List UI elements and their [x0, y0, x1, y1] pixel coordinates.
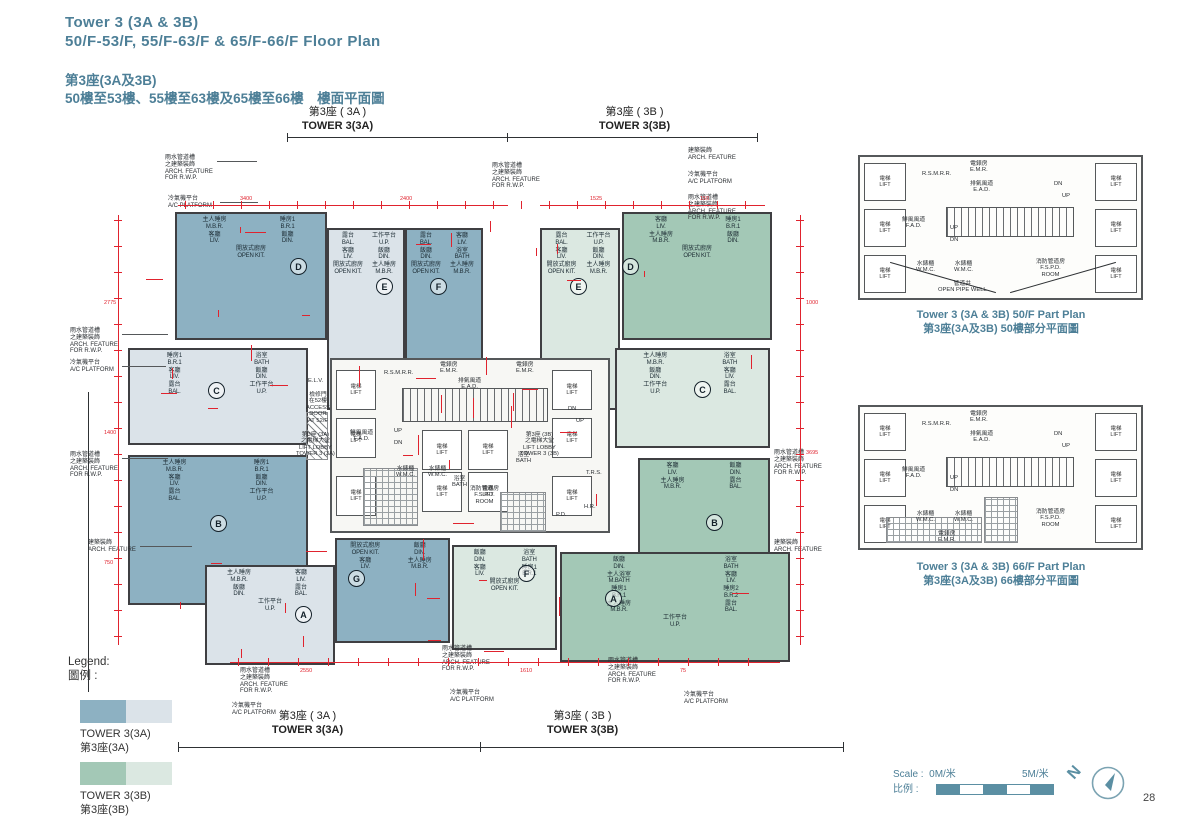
room-label: 露台BAL.	[331, 233, 364, 247]
core-label: E.L.V.	[308, 378, 323, 384]
annotation-line: A/C PLATFORM	[450, 697, 494, 704]
room-label: 露台BAL.	[272, 585, 329, 599]
dimension-line	[388, 658, 389, 666]
core-label: R.S.M.R.R.	[384, 370, 413, 376]
room-label: 浴室BATH	[445, 248, 478, 262]
room-label-en: DIN.	[367, 254, 400, 261]
part-plan-66f-label-line: E.M.R.	[970, 417, 988, 423]
room-label-en: B.R.2	[679, 593, 782, 600]
dimension-line	[403, 455, 413, 456]
room-label-zh: 主人睡房	[581, 262, 615, 269]
dimension-line	[633, 201, 634, 209]
part-plan-66f-lift-cell: 電梯LIFT	[1095, 505, 1137, 543]
annotation-line: 建築裝飾	[688, 148, 736, 155]
core-label: 電錶房E.M.R.	[516, 362, 534, 375]
room-label: 客廳LIV.	[457, 565, 503, 579]
dimension-value: 3695	[806, 450, 818, 456]
part-plan-66f-label-line: F.S.P.D.	[1036, 515, 1065, 521]
room-label-en: DIN.	[210, 591, 267, 598]
room-label-en: OPEN KIT.	[217, 253, 284, 260]
lift-label-en: LIFT	[566, 390, 577, 396]
room-label-zh: 客廳	[544, 248, 578, 255]
room-label: 開放式廚房OPEN KIT.	[544, 262, 578, 276]
room-label-zh: 浴室	[221, 353, 301, 360]
dimension-line	[521, 201, 522, 209]
room-label-zh: 開放式廚房	[664, 246, 730, 253]
dimension-line	[800, 215, 801, 645]
core-label-line: TOWER 3 (3A)	[296, 451, 335, 457]
room-label-zh: 睡房1	[134, 353, 214, 360]
page-title-zh-line1: 第3座(3A及3B)	[65, 72, 385, 90]
room-label-en: BATH	[695, 360, 764, 367]
room-label-en: DIN.	[457, 557, 503, 564]
room-label: 露台BAL.	[544, 233, 578, 247]
room-label: 客廳LIV.	[628, 217, 694, 231]
scale-bar-segment	[937, 785, 960, 794]
part-plan-50f-label-line: R.S.M.R.R.	[922, 171, 951, 177]
part-plan-66f-label-line: UP	[1062, 443, 1070, 449]
part-plan-50f-label-line: W.M.C.	[916, 267, 935, 273]
unit-letter-f: F	[430, 278, 447, 295]
room-label: 開放式廚房OPEN KIT.	[409, 262, 442, 276]
core-label-line: T.R.S.	[586, 470, 602, 476]
dimension-line	[796, 402, 804, 403]
part-plan-50f-label-line: DN	[1054, 181, 1062, 187]
dimension-line	[449, 460, 450, 470]
dimension-line	[409, 201, 410, 209]
dimension-line	[114, 506, 122, 507]
dimension-line	[114, 298, 122, 299]
unit-letter-c: C	[694, 381, 711, 398]
annotation-line: A/C PLATFORM	[168, 203, 212, 210]
room-label-en: DIN.	[700, 238, 766, 245]
dimension-line	[451, 233, 452, 247]
unit-letter-e: E	[376, 278, 393, 295]
part-plan-50f-label: 排氣風道E.A.D.	[970, 181, 993, 194]
core-label: 排氣風道E.A.D.	[458, 378, 481, 391]
annotation-callout: 冷氣機平台A/C PLATFORM	[168, 196, 212, 210]
room-label: 飯廳DIN.	[581, 248, 615, 262]
room-label-zh: 客廳	[695, 368, 764, 375]
part-plan-66f-label-line: DN	[1054, 431, 1062, 437]
dimension-line	[161, 393, 177, 394]
annotation-line: 冷氣機平台	[70, 360, 114, 367]
annotation-callout: 冷氣機平台A/C PLATFORM	[450, 690, 494, 704]
part-plan-50f-label: 消防管道房F.S.P.D.ROOM	[1036, 259, 1065, 278]
room-label-zh: 浴室	[695, 353, 764, 360]
dimension-line	[118, 215, 119, 645]
dimension-line	[745, 201, 746, 209]
part-plan-50f-label: R.S.M.R.R.	[922, 171, 951, 177]
dimension-line	[238, 658, 239, 666]
overall-dim-tick	[480, 742, 481, 752]
part-plan-50f-lift-cell: 電梯LIFT	[1095, 163, 1137, 201]
overall-dim-left	[88, 392, 89, 692]
room-label: 開放式廚房OPEN KIT.	[217, 246, 284, 260]
room-label-en: LIV.	[679, 578, 782, 585]
core-label: 檢修門在52樓ACCESSDOORAT 52/F	[306, 392, 330, 424]
room-label: 主人睡房M.B.R.	[181, 217, 248, 231]
room-label-zh: 浴室	[445, 248, 478, 255]
part-plan-66f-label: R.S.M.R.R.	[922, 421, 951, 427]
room-label-en: BATH	[221, 360, 301, 367]
annotation-line: ARCH. FEATURE	[688, 155, 736, 162]
legend-title-en: Legend:	[68, 655, 110, 669]
room-label-en: U.P.	[623, 622, 726, 629]
core-label-line: DN	[568, 406, 576, 412]
room-label-en: M.B.R.	[445, 269, 478, 276]
dimension-line	[448, 658, 449, 666]
room-label-zh: 飯廳	[567, 557, 670, 564]
core-label-line: BATH	[452, 482, 467, 488]
annotation-line: ARCH. FEATURE	[608, 672, 656, 679]
dimension-line	[114, 246, 122, 247]
room-label-zh: 露台	[331, 233, 364, 240]
core-label: 消防管道房F.S.P.D.ROOM	[470, 486, 499, 505]
lift-cell: 電梯LIFT	[468, 430, 508, 470]
room-label-en: LIV.	[695, 374, 764, 381]
lift-label-en: LIFT	[436, 450, 447, 456]
room-label-en: M.B.R.	[567, 607, 670, 614]
part-plan-50f-caption: Tower 3 (3A & 3B) 50/F Part Plan 第3座(3A及…	[851, 308, 1151, 337]
dimension-line	[598, 658, 599, 666]
dimension-line	[453, 523, 474, 524]
core-label-line: ROOM	[470, 499, 499, 505]
dimension-line	[628, 658, 629, 666]
dimension-line	[751, 355, 752, 369]
room-label: 飯廳DIN.	[409, 248, 442, 262]
dimension-line	[559, 597, 560, 616]
part-plan-50f-label-line: DN	[950, 237, 958, 243]
room-label: 飯廳DIN.	[210, 585, 267, 599]
scale-bar	[936, 784, 1054, 795]
room-label-en: BATH	[506, 557, 552, 564]
room-label-en: LIV.	[134, 374, 214, 381]
annotation-line: ARCH. FEATURE	[88, 547, 136, 554]
room-label-zh: 飯廳	[700, 232, 766, 239]
room-label-en: U.P.	[241, 606, 298, 613]
dimension-line	[596, 494, 597, 506]
dimension-line	[605, 201, 606, 209]
dimension-line	[114, 558, 122, 559]
room-label-zh: 飯廳	[221, 475, 301, 482]
core-label-line: BATH	[516, 458, 531, 464]
room-label: 飯廳DIN.	[367, 248, 400, 262]
room-label: 客廳LIV.	[134, 475, 214, 489]
part-plan-66f-label: 水錶櫃W.M.C.	[954, 511, 973, 524]
room-label-en: B.R.1	[700, 224, 766, 231]
core-label: 水錶櫃W.M.C.	[396, 466, 415, 479]
part-plan-66f-label: DN	[1054, 431, 1062, 437]
room-label: 飯廳DIN.	[567, 557, 670, 571]
room-label: 睡房1B.R.1	[254, 217, 321, 231]
dimension-line	[796, 376, 804, 377]
dimension-line	[486, 357, 487, 375]
dimension-line	[796, 584, 804, 585]
room-label: 客廳LIV.	[544, 248, 578, 262]
dimension-line	[717, 201, 718, 209]
room-label-en: OPEN KIT.	[409, 269, 442, 276]
legend-label-3b-zh: 第3座(3B)	[80, 803, 129, 817]
room-label-zh: 客廳	[272, 570, 329, 577]
room-label: 主人睡房M.B.R.	[644, 478, 702, 492]
room-label: 工作平台U.P.	[623, 615, 726, 629]
dimension-line	[251, 345, 252, 361]
annotation-line: 雨水管道槽	[492, 163, 540, 170]
annotation-line: 之建築裝飾	[492, 170, 540, 177]
dimension-value: 2550	[300, 668, 312, 674]
room-label: 露台BAL.	[679, 601, 782, 615]
annotation-callout: 雨水管道槽之建築裝飾ARCH. FEATUREFOR R.W.P.	[70, 452, 118, 479]
annotation-callout: 雨水管道槽之建築裝飾ARCH. FEATUREFOR R.W.P.	[240, 668, 288, 695]
annotation-line: ARCH. FEATURE	[688, 209, 736, 216]
dimension-value: 1000	[806, 300, 818, 306]
part-plan-50f-stair	[946, 207, 1074, 237]
room-label-en: DIN.	[221, 374, 301, 381]
dimension-line	[114, 402, 122, 403]
dimension-line	[241, 649, 242, 659]
room-label-zh: 開放式廚房	[340, 543, 390, 550]
room-label-zh: 飯廳	[395, 543, 445, 550]
part-plan-50f-label: UP	[950, 225, 958, 231]
dimension-line	[508, 658, 509, 666]
room-label-zh: 主人睡房	[134, 460, 214, 467]
unit-letter-d: D	[622, 258, 639, 275]
annotation-callout: 建築裝飾ARCH. FEATURE	[774, 540, 822, 554]
annotation-line: FOR R.W.P.	[774, 470, 822, 477]
dimension-line	[218, 310, 219, 317]
core-label: DN	[394, 440, 402, 446]
part-plan-66f-label-line: UP	[950, 475, 958, 481]
annotation-line: ARCH. FEATURE	[165, 169, 213, 176]
room-label: 工作平台U.P.	[221, 382, 301, 396]
core-label-line: E.M.R.	[440, 368, 458, 374]
room-label-zh: 客廳	[679, 572, 782, 579]
room-label-en: OPEN KIT.	[331, 269, 364, 276]
dimension-line	[298, 658, 299, 666]
lift-label-en: LIFT	[350, 496, 361, 502]
dimension-value: 1525	[590, 196, 602, 202]
part-plan-66f-label-line: R.S.M.R.R.	[922, 421, 951, 427]
dimension-value: 2400	[400, 196, 412, 202]
room-label-zh: 飯廳	[581, 248, 615, 255]
core-label: 鮮風風道F.A.D.	[350, 430, 373, 443]
part-plan-66f-lift-cell: 電梯LIFT	[1095, 413, 1137, 451]
room-label-en: LIV.	[181, 238, 248, 245]
part-plan-50f-label-line: E.A.D.	[970, 187, 993, 193]
dimension-line	[114, 610, 122, 611]
overall-dim-tick	[507, 133, 508, 142]
room-label: 開放式廚房OPEN KIT.	[340, 543, 390, 557]
room-label-en: U.P.	[367, 240, 400, 247]
legend-label-3a-en: TOWER 3(3A)	[80, 727, 151, 741]
core-label: 水錶櫃W.M.C.	[428, 466, 447, 479]
dimension-line	[303, 636, 304, 648]
room-label: 主人睡房M.B.R.	[367, 262, 400, 276]
dimension-line	[306, 551, 327, 552]
annotation-callout: 冷氣機平台A/C PLATFORM	[232, 703, 276, 717]
dimension-line	[114, 220, 122, 221]
annotation-line: 之建築裝飾	[608, 665, 656, 672]
dimension-line	[114, 454, 122, 455]
room-label-en: M.B.R.	[210, 577, 267, 584]
part-plan-66f-label: 電錶房E.M.R.	[970, 411, 988, 424]
overall-dim-tick	[843, 742, 844, 752]
dimension-line	[567, 280, 581, 281]
stair-flight	[402, 388, 548, 422]
room-label: 工作平台U.P.	[581, 233, 615, 247]
unit-letter-f: F	[518, 565, 535, 582]
dimension-line	[114, 428, 122, 429]
room-label: 浴室BATH	[679, 557, 782, 571]
scale-end-value: 5M/米	[1022, 768, 1049, 781]
annotation-leader-line	[220, 202, 258, 203]
room-label: 客廳LIV.	[134, 368, 214, 382]
dimension-line	[493, 201, 494, 209]
lift-cell: 電梯LIFT	[552, 370, 592, 410]
annotation-callout: 冷氣機平台A/C PLATFORM	[70, 360, 114, 374]
annotation-callout: 雨水管道槽之建築裝飾ARCH. FEATUREFOR R.W.P.	[688, 195, 736, 222]
dimension-line	[353, 201, 354, 209]
core-label-line: E.L.V.	[308, 378, 323, 384]
room-label-zh: 客廳	[181, 232, 248, 239]
core-label: 浴室BATH	[452, 476, 467, 489]
core-label: DN	[568, 406, 576, 412]
room-label-zh: 開放式廚房	[331, 262, 364, 269]
room-label: 客廳LIV.	[644, 463, 702, 477]
lift-label-en: LIFT	[879, 182, 890, 188]
dimension-line	[178, 205, 508, 206]
room-label: 飯廳DIN.	[254, 232, 321, 246]
room-label-en: BATH	[445, 254, 478, 261]
core-label-line: 之電梯大堂	[296, 438, 335, 444]
dimension-line	[114, 532, 122, 533]
room-label-en: M.B.R.	[628, 238, 694, 245]
annotation-line: FOR R.W.P.	[442, 666, 490, 673]
room-label-zh: 主人睡房	[181, 217, 248, 224]
room-label: 飯廳DIN.	[221, 475, 301, 489]
core-label: 第3座 (3A)之電梯大堂LIFT LOBBYTOWER 3 (3A)	[296, 432, 335, 458]
core-label-line: E.A.D.	[458, 384, 481, 390]
room-label-zh: 主人睡房	[367, 262, 400, 269]
room-label: 飯廳DIN.	[621, 368, 690, 382]
annotation-line: 雨水管道槽	[442, 646, 490, 653]
room-label-en: OPEN KIT.	[340, 550, 390, 557]
room-label-en: BAL.	[544, 240, 578, 247]
lift-label-en: LIFT	[482, 450, 493, 456]
dimension-line	[478, 658, 479, 666]
dimension-line	[796, 532, 804, 533]
unit-3b-a: 飯廳DIN.浴室BATH主人浴室M.BATH客廳LIV.睡房1B.R.1睡房2B…	[560, 552, 790, 662]
dimension-line	[688, 658, 689, 666]
legend-label-3a-zh: 第3座(3A)	[80, 741, 129, 755]
annotation-line: 冷氣機平台	[232, 703, 276, 710]
room-label: 主人睡房M.B.R.	[628, 232, 694, 246]
dimension-line	[114, 376, 122, 377]
room-label: 工作平台U.P.	[621, 382, 690, 396]
dimension-line	[796, 480, 804, 481]
dimension-line	[416, 378, 436, 379]
dimension-line	[560, 432, 577, 433]
room-label-zh: 飯廳	[210, 585, 267, 592]
lift-label-en: LIFT	[566, 496, 577, 502]
core-label-line: UP	[394, 428, 402, 434]
room-label-zh: 工作平台	[367, 233, 400, 240]
dimension-line	[437, 201, 438, 209]
room-label: 露台BAL.	[134, 489, 214, 503]
annotation-callout: 雨水管道槽之建築裝飾ARCH. FEATUREFOR R.W.P.	[70, 328, 118, 355]
overall-dim-tick	[757, 133, 758, 142]
part-plan-66f-caption-zh: 第3座(3A及3B) 66樓部分平面圖	[851, 574, 1151, 589]
dimension-line	[180, 602, 181, 609]
room-label: 工作平台U.P.	[241, 599, 298, 613]
scale-label-zh: 比例 :	[893, 783, 919, 796]
scale-bar-segment	[1030, 785, 1053, 794]
room-label-en: DIN.	[221, 481, 301, 488]
part-plan-50f-label: 管道井OPEN PIPE WELL	[938, 281, 987, 294]
lift-label-en: LIFT	[566, 438, 577, 444]
annotation-line: FOR R.W.P.	[70, 348, 118, 355]
lift-label-en: LIFT	[1110, 274, 1121, 280]
legend-swatch-3b	[80, 762, 172, 785]
dimension-value: 1400	[104, 430, 116, 436]
room-label-zh: 開放式廚房	[544, 262, 578, 269]
part-plan-66f-lobby-hatch-2	[984, 497, 1018, 543]
dimension-line	[577, 201, 578, 209]
annotation-line: 之建築裝飾	[70, 335, 118, 342]
part-plan-66f-label-line: E.A.D.	[970, 437, 993, 443]
room-label-zh: 工作平台	[221, 382, 301, 389]
tower-3b-top-label-en: TOWER 3(3B)	[552, 119, 717, 134]
dimension-line	[114, 324, 122, 325]
annotation-leader-line	[122, 334, 168, 335]
lift-label-en: LIFT	[879, 478, 890, 484]
room-label-zh: 客廳	[134, 475, 214, 482]
dimension-line	[536, 248, 537, 256]
annotation-line: ARCH. FEATURE	[70, 466, 118, 473]
room-label-zh: 主人睡房	[621, 353, 690, 360]
room-label: 浴室BATH	[221, 353, 301, 367]
dimension-line	[381, 201, 382, 209]
core-label-line: UP	[576, 418, 584, 424]
core-label: UP	[576, 418, 584, 424]
annotation-callout: 冷氣機平台A/C PLATFORM	[688, 172, 732, 186]
part-plan-50f-label-line: UP	[1062, 193, 1070, 199]
annotation-line: FOR R.W.P.	[608, 678, 656, 685]
part-plan-50f-lift-cell: 電梯LIFT	[864, 163, 906, 201]
core-label-line: 之電梯大堂	[520, 438, 559, 444]
annotation-line: FOR R.W.P.	[492, 183, 540, 190]
part-plan-50f-label: 電錶房E.M.R.	[970, 161, 988, 174]
legend-swatch-3a-dark	[80, 700, 126, 723]
annotation-line: A/C PLATFORM	[684, 699, 728, 706]
annotation-line: 之建築裝飾	[165, 162, 213, 169]
scale-start-value: 0M/米	[929, 769, 956, 780]
room-label-en: BATH	[679, 564, 782, 571]
legend-swatch-3b-dark	[80, 762, 126, 785]
dimension-line	[325, 201, 326, 209]
core-label: 電錶房E.M.R.	[440, 362, 458, 375]
part-plan-66f-label-line: F.A.D.	[902, 473, 925, 479]
room-label-zh: 飯廳	[707, 463, 765, 470]
dimension-line	[208, 408, 217, 409]
room-label: 工作平台U.P.	[367, 233, 400, 247]
lift-label-en: LIFT	[1110, 228, 1121, 234]
dimension-line	[796, 298, 804, 299]
core-label-line: W.M.C.	[428, 472, 447, 478]
dimension-line	[418, 435, 419, 455]
room-label: 客廳LIV.	[331, 248, 364, 262]
